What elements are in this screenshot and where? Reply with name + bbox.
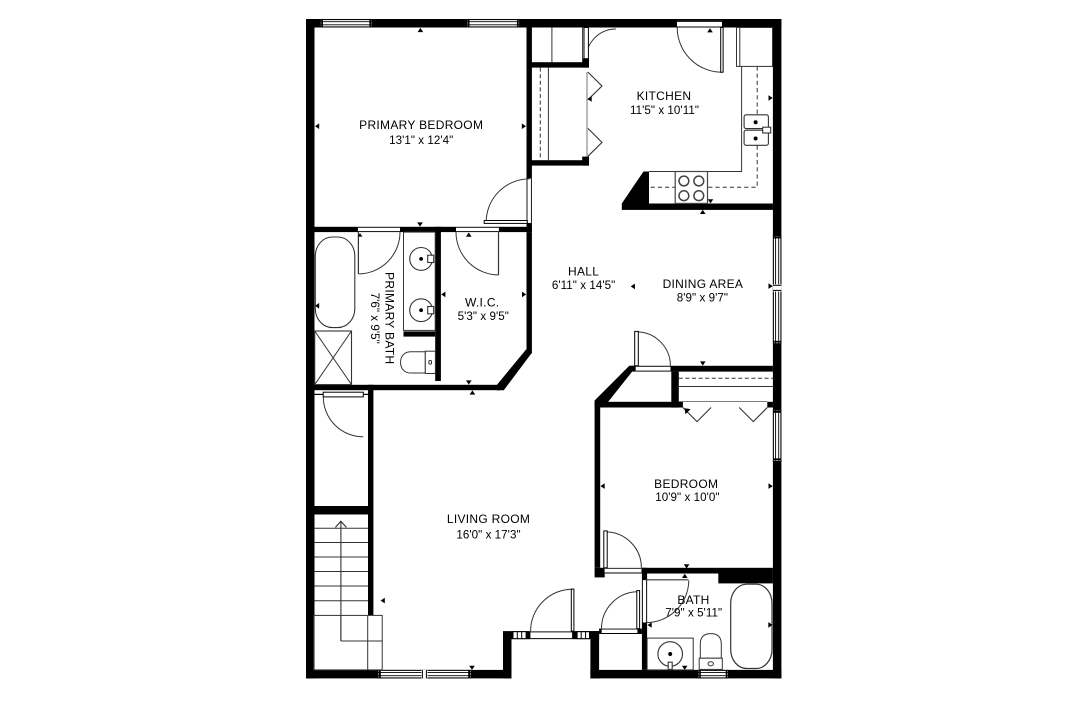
svg-text:LIVING ROOM: LIVING ROOM bbox=[447, 512, 530, 526]
svg-text:11'5" x 10'11": 11'5" x 10'11" bbox=[630, 104, 699, 117]
svg-text:PRIMARY BATH: PRIMARY BATH bbox=[382, 272, 396, 364]
svg-text:10'9" x 10'0": 10'9" x 10'0" bbox=[655, 491, 719, 504]
svg-text:KITCHEN: KITCHEN bbox=[637, 89, 692, 103]
svg-text:5'3" x 9'5": 5'3" x 9'5" bbox=[458, 310, 509, 323]
svg-text:7'9" x 5'11": 7'9" x 5'11" bbox=[665, 606, 722, 619]
svg-text:BATH: BATH bbox=[677, 593, 709, 607]
svg-text:7'6" x 9'5": 7'6" x 9'5" bbox=[368, 293, 381, 344]
svg-text:8'9" x 9'7": 8'9" x 9'7" bbox=[677, 292, 728, 305]
svg-text:BEDROOM: BEDROOM bbox=[654, 477, 718, 491]
svg-text:HALL: HALL bbox=[568, 265, 599, 279]
svg-text:PRIMARY BEDROOM: PRIMARY BEDROOM bbox=[359, 118, 483, 132]
svg-text:13'1" x 12'4": 13'1" x 12'4" bbox=[389, 134, 453, 147]
svg-text:DINING AREA: DINING AREA bbox=[663, 277, 744, 291]
svg-text:6'11" x 14'5": 6'11" x 14'5" bbox=[552, 279, 615, 292]
svg-text:16'0" x 17'3": 16'0" x 17'3" bbox=[456, 529, 520, 542]
svg-text:W.I.C.: W.I.C. bbox=[465, 296, 499, 310]
